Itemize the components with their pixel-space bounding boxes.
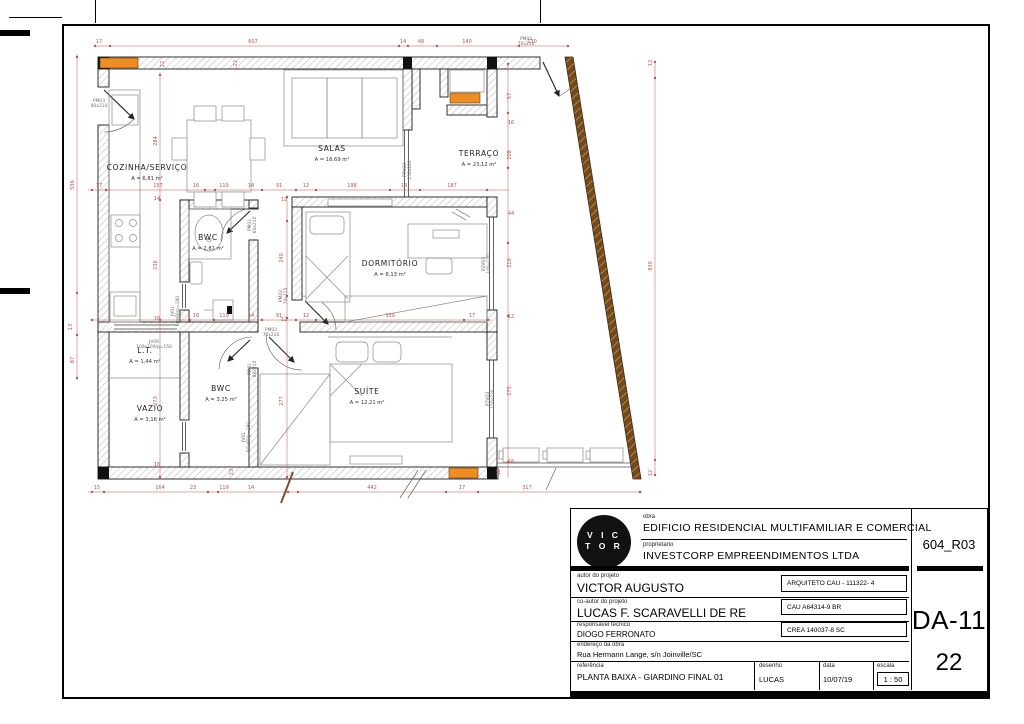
dim-label: 442 [367,485,377,491]
revision-code: 604_R03 [911,537,987,552]
dim-label: 16 [193,183,199,189]
dim-label: 23 [229,469,235,475]
room-label: BWC [211,384,231,393]
dim-label: 17 [459,485,465,491]
opening-tag: 60x60/p=180 [246,422,252,452]
dim-label: 13 [68,324,74,330]
drawn-by: LUCAS [759,675,784,684]
reference-label: referência [577,663,604,669]
owner-label: proprietario [643,542,673,548]
coauthor-name: LUCAS F. SCARAVELLI DE RE [577,606,746,620]
dim-label: 273 [153,396,159,406]
opening-tag: 150x220 [407,160,413,180]
responsible-label: responsável técnico [577,622,630,628]
dim-label: 14 [248,313,254,319]
dim-label: 12 [281,317,287,323]
room-area-label: A = 3,16 m² [134,417,166,423]
scale-value: 1 : 50 [877,672,909,686]
dim-label: 48 [418,39,424,45]
dim-label: 16 [154,316,160,322]
dim-label: 23 [190,485,196,491]
dim-label: 16 [508,120,514,126]
opening-tag: 150x220 [490,389,496,409]
opening-tag: 100x100/p=150 [136,344,172,350]
room-label: SALAS [318,144,346,153]
author-label: autor do projeto [577,573,619,579]
dim-label: 164 [155,485,165,491]
dim-label: 22 [160,61,166,67]
dim-label: 91 [276,183,282,189]
drawing-sheet: COZINHA/SERVIÇOA = 6,81 m²SALASA = 16,69… [0,0,1024,724]
opening-tag: 70x210 [518,41,535,47]
opening-tag: 100x220 [486,254,492,274]
dim-label: 12 [508,314,514,320]
coauthor-registration: CAU A64314-9 BR [781,599,907,615]
dim-label: 14 [401,183,407,189]
opening-tag: 70x210 [263,332,280,338]
dim-label: 14 [400,39,406,45]
dim-label: 44 [508,211,514,217]
dim-label: 57 [507,93,513,99]
room-area-label: A = 8,13 m² [374,272,406,278]
inclined-facade-wall [565,57,641,479]
dim-label: 607 [248,39,258,45]
dim-label: 16 [508,459,514,465]
room-label: DORMITÓRIO [362,259,418,268]
room-area-label: A = 12,21 m² [350,400,385,406]
dim-label: 14 [154,196,160,202]
site-address: Rua Hermann Lange, s/n Joinville/SC [577,650,702,659]
dim-label: 187 [447,183,457,189]
drawing-reference: PLANTA BAIXA - GIARDINO FINAL 01 [577,672,723,682]
terrace-railing [497,448,634,467]
dimension-lines [76,45,656,493]
opening-tag: 80x210 [252,361,258,378]
obra-label: obra [643,514,655,520]
logo-text-line1: V I C [577,530,631,541]
opening-tag: 70x210 [283,288,289,305]
dim-label: 317 [522,485,532,491]
dim-label: 17 [469,313,475,319]
project-title: EDIFICIO RESIDENCIAL MULTIFAMILIAR E COM… [643,522,932,534]
room-label: COZINHA/SERVIÇO [107,163,188,172]
logo-text-line2: T O R [577,541,631,552]
room-area-label: A = 1,44 m² [129,359,161,365]
sheet-number: 22 [911,649,987,677]
opening-tag: 80x210 [91,103,108,109]
dim-label: 277 [279,396,285,406]
dim-label: 12 [648,60,654,66]
dim-label: 119 [219,485,229,491]
architect-logo: V I C T O R [577,515,631,569]
room-area-label: A = 2,81 m² [192,246,224,252]
dim-label: 87 [70,357,76,363]
dim-label: 12 [303,313,309,319]
opening-tag: 60x60/p=180 [175,296,181,326]
dim-label: 536 [70,180,76,190]
dim-label: 830 [648,261,654,271]
author-registration: ARQUITETO CAU - 111322- 4 [781,575,907,592]
room-area-label: A = 16,69 m² [315,157,350,163]
dim-label: 240 [279,253,285,263]
date-label: data [823,663,835,669]
dim-label: 16 [154,462,160,468]
dim-label: 12 [496,469,502,475]
coauthor-label: co-autor do projeto [577,599,627,605]
dimension-ticks [76,45,656,493]
room-area-label: A = 23,12 m² [462,162,497,168]
dim-label: 140 [462,39,472,45]
dim-label: 236 [153,260,159,270]
dim-label: 15 [94,485,100,491]
title-block: V I C T O R obra EDIFICIO RESIDENCIAL MU… [570,508,988,698]
dim-label: 12 [281,197,287,203]
responsible-registration: CREA 140037-8 SC [781,622,907,637]
drawn-by-label: desenho [759,663,782,669]
scale-label: escala [877,663,894,669]
owner-name: INVESTCORP EMPREENDIMENTOS LTDA [643,550,859,562]
dim-label: 339 [385,313,395,319]
dim-label: 17 [96,183,102,189]
dim-label: 16 [193,313,199,319]
room-label: TERRAÇO [458,149,499,158]
room-label: SUÍTE [354,387,379,396]
dim-label: 198 [347,183,357,189]
dim-label: 17 [96,39,102,45]
dim-label: 12 [303,183,309,189]
dim-label: 119 [219,313,229,319]
dim-label: 119 [219,183,229,189]
dim-label: 12 [648,470,654,476]
dim-label: 14 [248,485,254,491]
opening-tag: 60x210 [252,217,258,234]
room-label: BWC [198,233,218,242]
dim-label: 22 [233,60,239,66]
dim-label: 210 [507,258,513,268]
dim-label: 157 [153,183,163,189]
date-value: 10/07/19 [823,675,852,684]
author-name: VICTOR AUGUSTO [577,581,684,595]
dim-label: 208 [507,150,513,160]
address-label: endereço da obra [577,642,624,648]
responsible-name: DIOGO FERRONATO [577,630,655,639]
dim-label: 284 [153,136,159,146]
windows [112,130,494,451]
dim-label: 275 [507,386,513,396]
room-label: VAZIO [137,404,164,413]
dim-label: 14 [248,183,254,189]
room-area-label: A = 3,25 m² [205,397,237,403]
sheet-code: DA-11 [911,605,987,636]
room-area-label: A = 6,81 m² [131,176,163,182]
